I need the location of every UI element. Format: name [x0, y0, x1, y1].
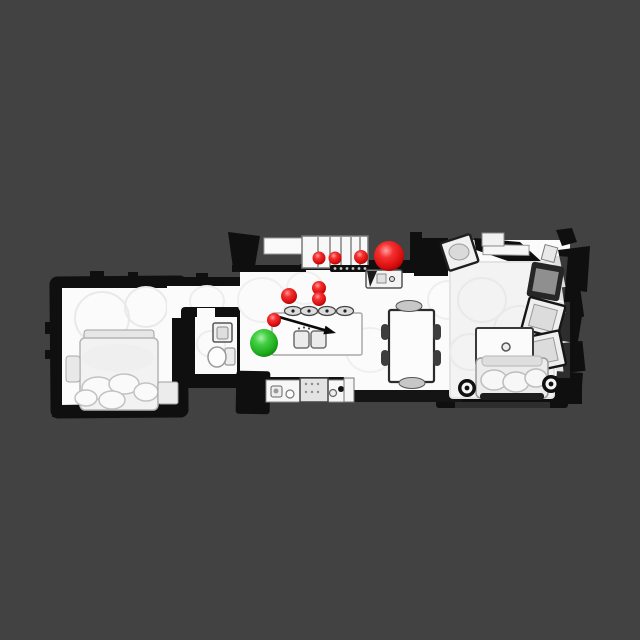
kitchen-counter-left: [264, 238, 302, 254]
living-bottom-wall-2: [455, 402, 550, 408]
island-burner-dot: [325, 309, 328, 312]
red-sphere-marker: [329, 252, 342, 265]
striped-ball-core: [549, 382, 554, 387]
stove-texture-dot: [305, 383, 307, 385]
stove-knob: [364, 267, 367, 270]
island-burner-dot: [291, 309, 294, 312]
dining-chair: [381, 350, 389, 366]
stove-knob: [358, 267, 361, 270]
bedside-table: [158, 382, 178, 404]
island-burner-dot: [343, 309, 346, 312]
dining-chair: [381, 324, 389, 340]
dining-chair: [399, 378, 425, 389]
bed-pillow: [75, 390, 97, 406]
island-sink: [294, 331, 309, 348]
stove-knob: [352, 267, 355, 270]
red-sphere-marker: [281, 288, 297, 304]
green-sphere-marker: [250, 329, 278, 357]
hallway-wall-nub: [196, 273, 208, 281]
bedside-object: [66, 356, 80, 382]
dining-chair: [433, 350, 441, 366]
sofa-base-shadow: [480, 393, 544, 400]
bed-pillow: [99, 391, 125, 409]
bedroom-wall-nub: [128, 272, 138, 279]
dining-bottom-wall: [350, 390, 462, 402]
counter-pillar: [344, 378, 354, 402]
counter-item: [286, 390, 294, 398]
island-faucet-dot: [303, 326, 305, 328]
viewport: [0, 0, 640, 640]
island-burner-dot: [307, 309, 310, 312]
bedroom-wall-nub: [45, 322, 54, 334]
bed-blanket-shade: [82, 344, 154, 372]
stove-texture-dot: [311, 391, 313, 393]
dining-chair: [396, 301, 422, 312]
bathroom-door-gap: [197, 308, 215, 319]
accent-chair-seat: [449, 244, 469, 260]
sofa-back: [482, 356, 542, 366]
oven-knob: [390, 277, 395, 282]
dining-chair: [433, 324, 441, 340]
red-sphere-marker: [354, 250, 368, 264]
stove-knob: [334, 267, 337, 270]
stove-knob: [346, 267, 349, 270]
red-sphere-marker: [312, 292, 326, 306]
stove-knob: [340, 267, 343, 270]
kitchen-bottomleft-wall: [236, 371, 271, 415]
bathroom-sink-basin: [217, 327, 228, 339]
counter-item-dark: [338, 386, 344, 392]
red-sphere-marker: [313, 252, 326, 265]
stove-texture-dot: [317, 391, 319, 393]
striped-ball-core: [465, 386, 470, 391]
red-sphere-marker: [267, 313, 281, 327]
console-box: [482, 233, 504, 246]
stove-texture-dot: [317, 383, 319, 385]
toilet-bowl: [208, 347, 226, 367]
oven-detail: [377, 274, 386, 283]
counter-item-knob: [274, 389, 279, 394]
stove-texture-dot: [305, 391, 307, 393]
floorplan-canvas: [0, 0, 640, 640]
stove-block: [300, 378, 328, 402]
bedroom-wall-nub: [90, 271, 104, 280]
bed-pillow: [134, 383, 158, 401]
island-faucet-dot: [308, 327, 310, 329]
island-faucet-dot: [298, 327, 300, 329]
dark-chair-seat: [532, 268, 559, 295]
red-sphere-marker: [374, 241, 404, 271]
kitchen-top-wall: [232, 265, 306, 272]
stove-texture-dot: [311, 383, 313, 385]
dining-table: [389, 310, 434, 382]
bedroom-wall-nub: [45, 350, 54, 359]
coffee-table-knob: [502, 343, 510, 351]
counter-item: [330, 390, 337, 397]
